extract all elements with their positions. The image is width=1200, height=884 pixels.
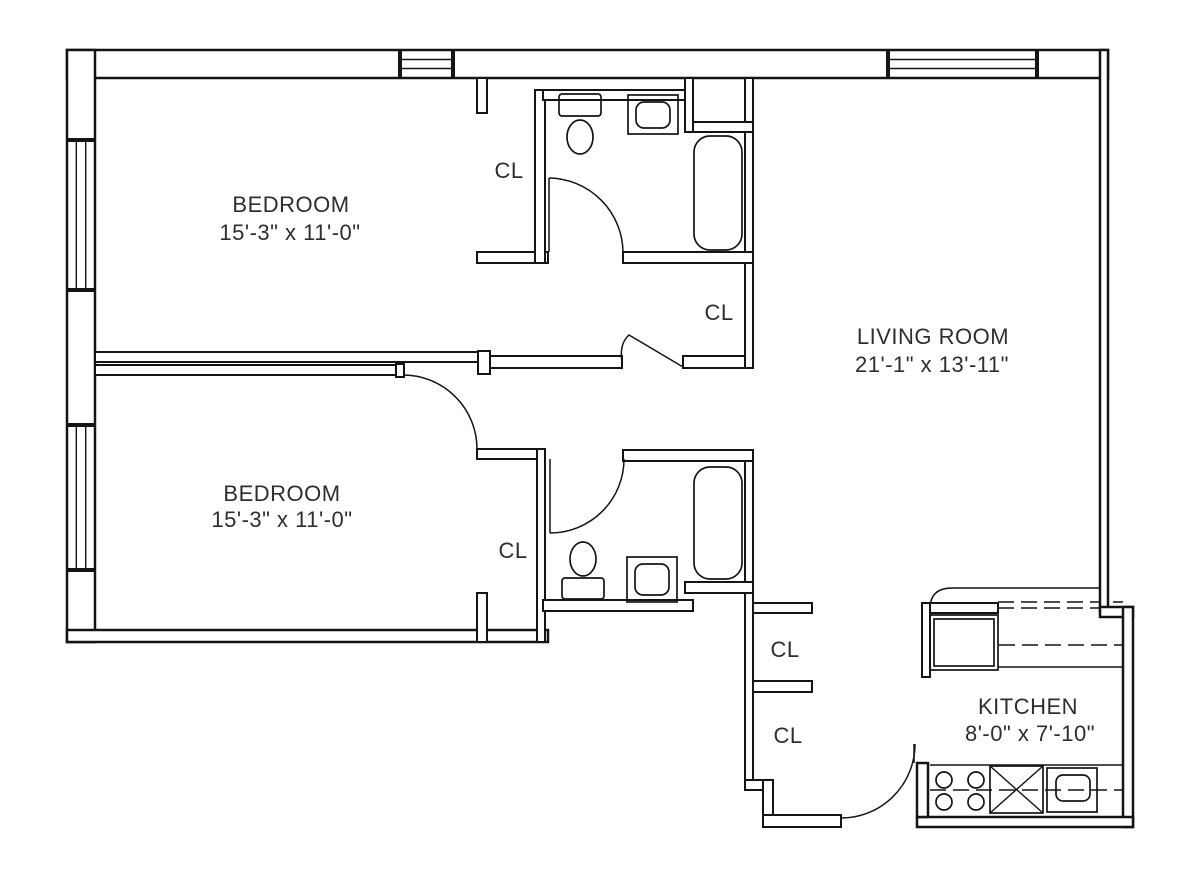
door-swing-arc [549, 178, 623, 253]
closet-label: CL [770, 637, 799, 662]
bathroom-top [549, 94, 742, 253]
toilet-tank-icon [562, 578, 604, 599]
wall-hall-middle [490, 356, 622, 368]
bathtub-icon [694, 136, 742, 250]
wall-bedroom-divider [95, 352, 478, 362]
wall-hall-right [683, 356, 753, 368]
wall-kitchen-left-stub [917, 763, 928, 817]
wall-kitchen-left-upper [922, 603, 930, 677]
room-dims-living-room: 21'-1" x 13'-11" [855, 352, 1009, 377]
wall-vertical-lower [745, 450, 753, 790]
closet-label: CL [494, 158, 523, 183]
floor-plan-svg: BEDROOM 15'-3" x 11'-0" BEDROOM 15'-3" x… [0, 0, 1200, 884]
wall-tub-end-bottom [685, 582, 753, 593]
closet-label: CL [704, 300, 733, 325]
wall-bathroom-top-bottom [623, 252, 753, 263]
toilet-bowl-icon [570, 542, 596, 576]
bathtub-icon [694, 467, 742, 579]
wall-door-jamb [396, 364, 404, 377]
wall-tub-nook-top [685, 78, 693, 132]
wall-kitchen-right [1123, 607, 1133, 827]
sink-basin-icon [635, 564, 669, 595]
room-label-kitchen: KITCHEN [978, 694, 1078, 719]
door-swing-arc [550, 459, 624, 533]
interior-walls [95, 78, 998, 827]
doors [403, 335, 915, 818]
wall-foyer-bottom [763, 815, 841, 827]
wall-bedroom-bottom-top [95, 365, 396, 375]
room-dims-bedroom-bottom: 15'-3" x 11'-0" [211, 507, 352, 532]
bathroom-bottom [550, 459, 742, 602]
wall-bottom-left [67, 630, 548, 642]
wall-bathroom-top-left [535, 90, 545, 263]
wall-bathroom-bottom-left [537, 449, 545, 642]
wall-kitchen-top [922, 603, 998, 613]
wall-closet-bottom-top [477, 449, 537, 459]
room-label-living-room: LIVING ROOM [857, 324, 1009, 349]
room-dims-bedroom-top: 15'-3" x 11'-0" [219, 220, 360, 245]
room-label-bedroom-top: BEDROOM [232, 192, 349, 217]
toilet-bowl-icon [567, 120, 593, 154]
closet-label: CL [498, 538, 527, 563]
wall-divider-end-cap [478, 351, 490, 374]
floor-plan: BEDROOM 15'-3" x 11'-0" BEDROOM 15'-3" x… [0, 0, 1200, 884]
room-dims-kitchen: 8'-0" x 7'-10" [965, 721, 1095, 746]
hall-closet-door [621, 335, 683, 367]
wall-kitchen-bottom [917, 817, 1133, 827]
wall-top [67, 50, 1108, 78]
room-label-bedroom-bottom: BEDROOM [223, 481, 340, 506]
wall-closet-top-stub [477, 78, 487, 113]
sink-basin-icon [636, 102, 670, 128]
windows [67, 50, 1039, 572]
wall-closet-bottom-stub [477, 593, 487, 642]
exterior-walls [67, 50, 1133, 827]
wall-tub-head-top [693, 122, 753, 132]
entry-door-arc [841, 744, 915, 818]
refrigerator-icon [930, 615, 998, 670]
wall-foyer-closet-stub-upper [753, 603, 812, 613]
bedroom-bottom-door-arc [403, 375, 477, 449]
stove-icon [936, 772, 984, 810]
closet-label: CL [773, 723, 802, 748]
wall-foyer-closet-stub-lower [753, 681, 812, 692]
wall-right-living-room [1100, 50, 1108, 612]
kitchen-counter-bottom [930, 765, 1123, 813]
kitchen-counter-top [930, 588, 1123, 670]
wall-bathroom-bottom-top [623, 450, 753, 461]
